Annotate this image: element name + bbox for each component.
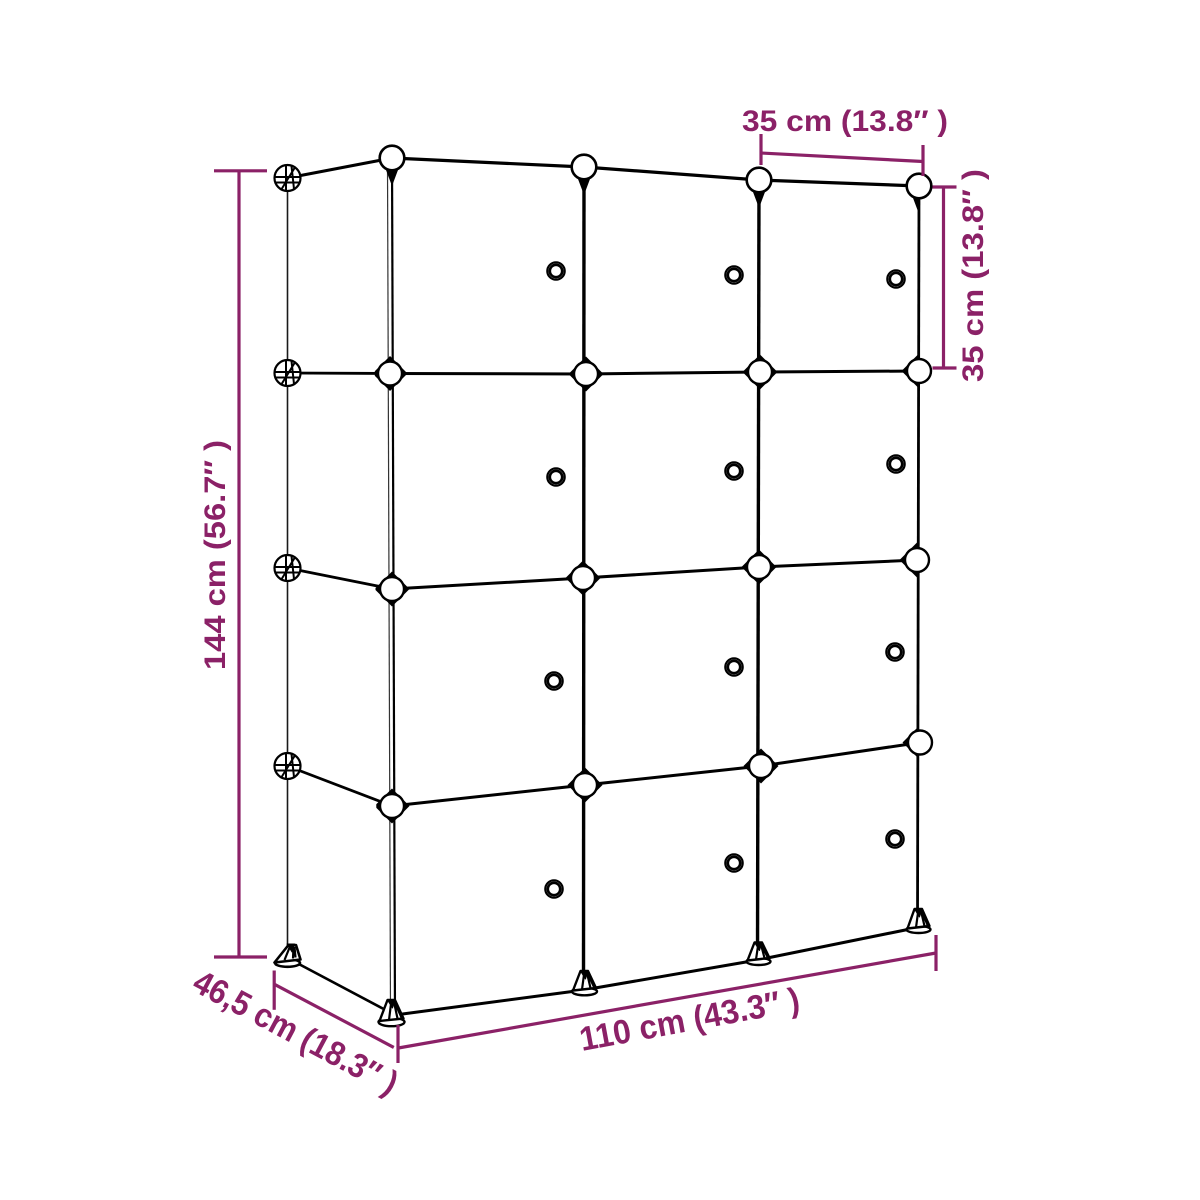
svg-text:144 cm (56.7″ ): 144 cm (56.7″ )	[199, 440, 232, 670]
svg-text:35 cm (13.8″ ): 35 cm (13.8″ )	[742, 105, 948, 138]
svg-text:35 cm (13.8″ ): 35 cm (13.8″ )	[957, 169, 990, 382]
